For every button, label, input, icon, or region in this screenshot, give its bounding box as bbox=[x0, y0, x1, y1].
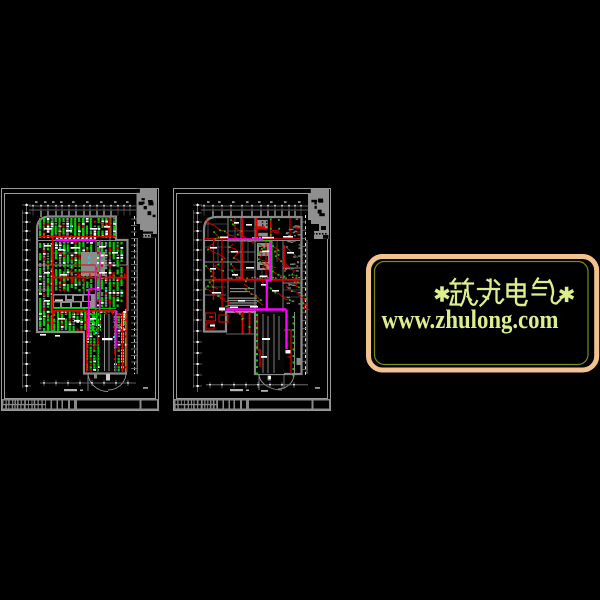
svg-text:www.zhulong.com: www.zhulong.com bbox=[382, 305, 559, 334]
